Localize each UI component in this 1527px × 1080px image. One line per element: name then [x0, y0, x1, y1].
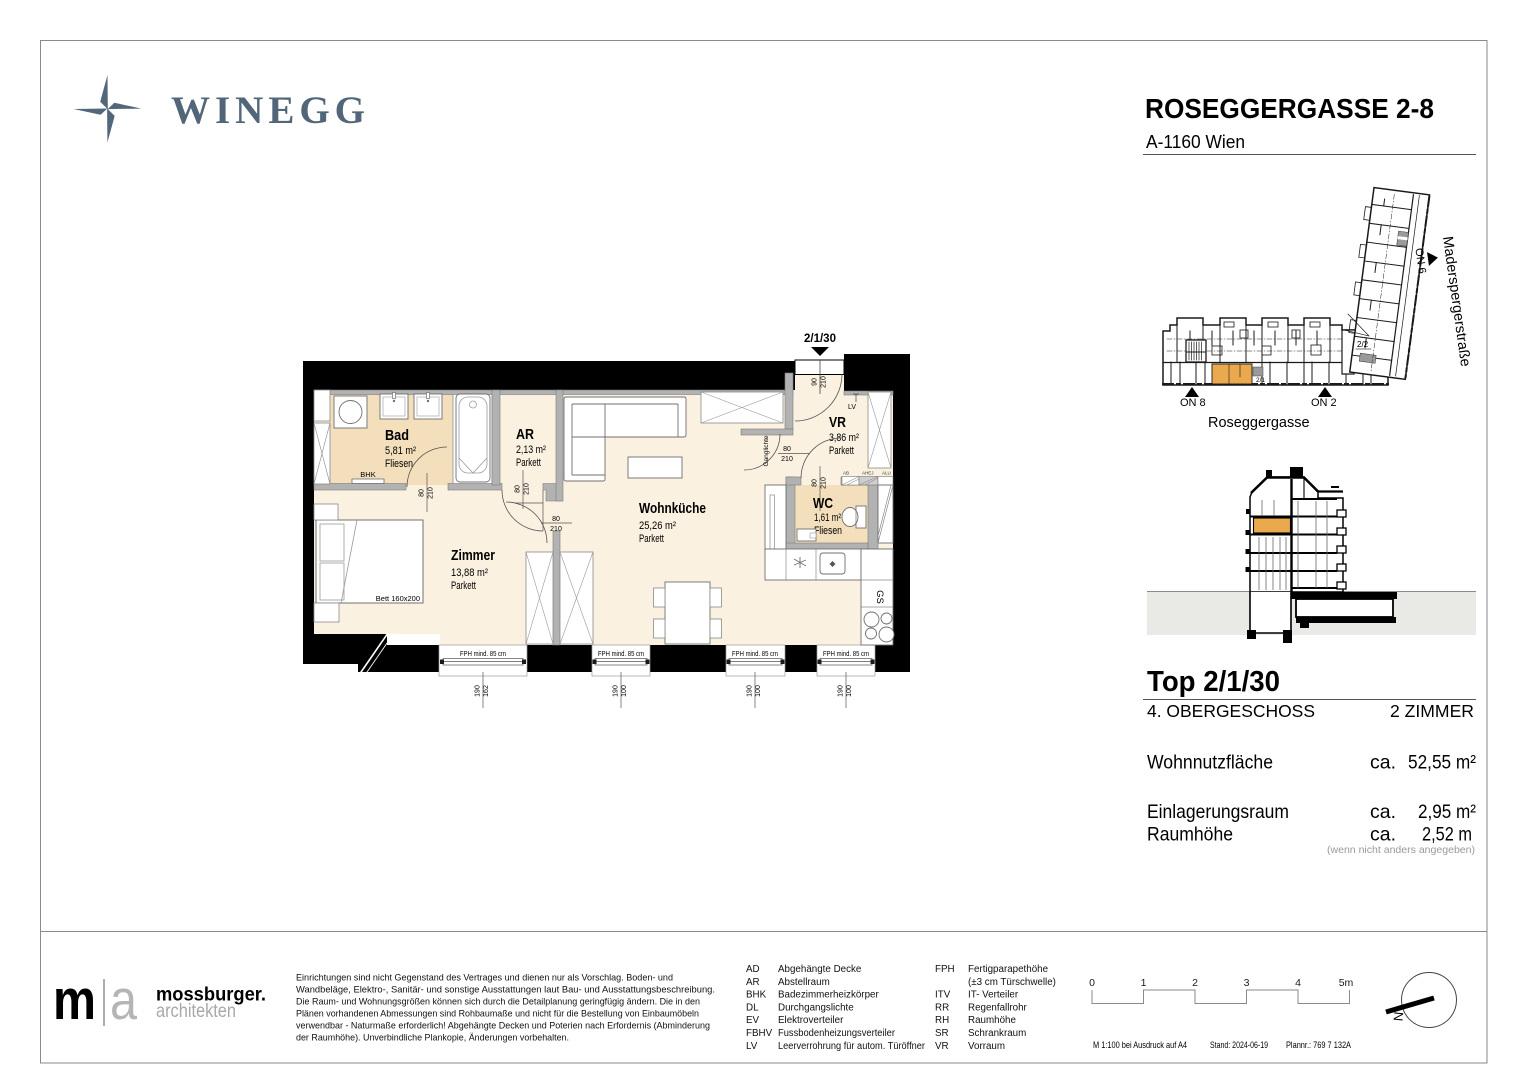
svg-text:A-1160 Wien: A-1160 Wien	[1146, 131, 1245, 152]
svg-text:der Raumhöhe). Unverbindliche: der Raumhöhe). Unverbindliche Plankopie,…	[296, 1033, 569, 1044]
svg-text:ca.: ca.	[1370, 801, 1396, 823]
svg-text:Raumhöhe: Raumhöhe	[1147, 824, 1233, 846]
svg-text:ALU: ALU	[882, 471, 891, 476]
svg-text:Bett 160x200: Bett 160x200	[376, 594, 420, 603]
svg-text:210: 210	[821, 477, 828, 489]
svg-text:VR: VR	[829, 414, 846, 431]
svg-text:Einrichtungen sind nicht Gegen: Einrichtungen sind nicht Gegenstand des …	[296, 973, 673, 984]
svg-text:210: 210	[550, 526, 562, 533]
svg-text:80: 80	[419, 489, 426, 497]
svg-text:N: N	[1391, 1011, 1407, 1022]
svg-text:architekten: architekten	[156, 1000, 236, 1022]
svg-text:BHK: BHK	[746, 990, 767, 1001]
svg-text:RH: RH	[935, 1015, 949, 1026]
svg-text:BHK: BHK	[360, 470, 375, 479]
svg-text:Plannr.: 769 7 132A: Plannr.: 769 7 132A	[1286, 1040, 1352, 1051]
svg-text:ITV: ITV	[935, 990, 951, 1001]
svg-text:2: 2	[1192, 977, 1198, 989]
svg-text:25,26 m²: 25,26 m²	[639, 520, 676, 532]
svg-text:210: 210	[524, 483, 531, 495]
svg-text:WC: WC	[813, 495, 833, 512]
svg-text:LV: LV	[746, 1041, 758, 1052]
svg-text:ROSEGGERGASSE 2-8: ROSEGGERGASSE 2-8	[1145, 93, 1434, 124]
svg-text:AHEJ: AHEJ	[862, 471, 874, 476]
svg-text:VR: VR	[935, 1041, 949, 1052]
svg-text:5,81 m²: 5,81 m²	[385, 445, 416, 457]
svg-text:1,61 m²: 1,61 m²	[814, 512, 841, 524]
svg-text:Parkett: Parkett	[829, 445, 854, 457]
svg-text:verwendbar - Naturmaße erforde: verwendbar - Naturmaße erforderlich! Abg…	[296, 1021, 710, 1032]
svg-text:2/2: 2/2	[1357, 340, 1369, 349]
svg-text:2,52 m: 2,52 m	[1422, 824, 1472, 846]
svg-text:ON 2: ON 2	[1311, 397, 1337, 409]
svg-text:190: 190	[613, 685, 620, 697]
svg-text:SR: SR	[935, 1028, 949, 1039]
svg-text:1: 1	[1141, 977, 1147, 989]
svg-text:Regenfallrohr: Regenfallrohr	[968, 1002, 1028, 1013]
svg-text:Roseggergasse: Roseggergasse	[1208, 415, 1310, 431]
svg-text:210: 210	[781, 456, 793, 463]
svg-text:Einlagerungsraum: Einlagerungsraum	[1147, 801, 1289, 823]
svg-text:IT- Verteiler: IT- Verteiler	[968, 990, 1019, 1001]
svg-text:4: 4	[1295, 977, 1301, 989]
svg-text:m: m	[53, 968, 96, 1032]
svg-text:FPH mind. 85 cm: FPH mind. 85 cm	[823, 649, 869, 658]
svg-text:100: 100	[755, 685, 762, 697]
svg-text:4. OBERGESCHOSS: 4. OBERGESCHOSS	[1147, 701, 1315, 721]
svg-text:Die Raum- und Wohnungsgrößen k: Die Raum- und Wohnungsgrößen können sich…	[296, 997, 700, 1008]
svg-text:FPH mind. 85 cm: FPH mind. 85 cm	[732, 649, 778, 658]
svg-text:210: 210	[821, 376, 828, 388]
svg-text:EV: EV	[746, 1015, 760, 1026]
svg-text:90: 90	[812, 378, 819, 386]
svg-text:210: 210	[428, 487, 435, 499]
svg-text:Wohnküche: Wohnküche	[639, 500, 706, 517]
svg-text:162: 162	[483, 685, 490, 697]
svg-text:Fussbodenheizungsverteiler: Fussbodenheizungsverteiler	[778, 1028, 896, 1039]
svg-text:FPH mind. 85 cm: FPH mind. 85 cm	[460, 649, 506, 658]
svg-text:Wandbeläge, Elektro-, Sanitär-: Wandbeläge, Elektro-, Sanitär- und sonst…	[296, 985, 715, 996]
svg-text:Badezimmerheizkörper: Badezimmerheizkörper	[778, 990, 879, 1001]
svg-text:0: 0	[1089, 977, 1095, 989]
svg-text:WINEGG: WINEGG	[171, 89, 365, 132]
svg-text:2,95 m²: 2,95 m²	[1418, 801, 1476, 823]
svg-text:Fliesen: Fliesen	[385, 458, 413, 470]
svg-text:Bad: Bad	[385, 427, 409, 444]
svg-text:(wenn nicht anders angegeben): (wenn nicht anders angegeben)	[1327, 844, 1475, 856]
svg-text:2/1: 2/1	[1256, 377, 1265, 384]
svg-text:100: 100	[621, 685, 628, 697]
svg-text:190: 190	[747, 685, 754, 697]
svg-text:2 ZIMMER: 2 ZIMMER	[1390, 701, 1474, 721]
svg-text:Elektroverteiler: Elektroverteiler	[778, 1015, 844, 1026]
svg-text:ON 8: ON 8	[1180, 397, 1206, 409]
svg-text:FPH: FPH	[935, 964, 955, 975]
svg-text:LV: LV	[848, 404, 856, 411]
svg-text:Zimmer: Zimmer	[451, 547, 495, 564]
svg-text:2,13 m²: 2,13 m²	[516, 444, 546, 456]
svg-text:Stand: 2024-06-19: Stand: 2024-06-19	[1210, 1040, 1268, 1051]
svg-text:FBHV: FBHV	[746, 1028, 773, 1039]
svg-text:3: 3	[1244, 977, 1250, 989]
svg-text:52,55 m²: 52,55 m²	[1408, 752, 1476, 774]
svg-text:Fertigparapethöhe: Fertigparapethöhe	[968, 964, 1049, 975]
svg-text:Top 2/1/30: Top 2/1/30	[1147, 666, 1280, 698]
svg-text:a: a	[110, 968, 137, 1032]
svg-text:Raumhöhe: Raumhöhe	[968, 1015, 1016, 1026]
svg-text:80: 80	[812, 479, 819, 487]
svg-text:RR: RR	[935, 1002, 949, 1013]
svg-text:Wohnnutzfläche: Wohnnutzfläche	[1147, 752, 1273, 774]
svg-text:Ganglichte: Ganglichte	[763, 435, 770, 466]
svg-text:3,86 m²: 3,86 m²	[829, 432, 859, 444]
svg-text:(±3 cm Türschwelle): (±3 cm Türschwelle)	[968, 977, 1056, 988]
svg-text:Vorraum: Vorraum	[968, 1041, 1005, 1052]
svg-text:Abstellraum: Abstellraum	[778, 977, 830, 988]
svg-text:80: 80	[515, 485, 522, 493]
svg-text:FPH mind. 85 cm: FPH mind. 85 cm	[598, 649, 644, 658]
svg-text:80: 80	[552, 516, 560, 523]
svg-text:190: 190	[838, 685, 845, 697]
svg-text:Parkett: Parkett	[451, 580, 476, 592]
svg-text:80: 80	[783, 446, 791, 453]
svg-text:Abgehängte Decke: Abgehängte Decke	[778, 964, 862, 975]
svg-text:2/1/30: 2/1/30	[804, 333, 836, 345]
svg-text:13,88 m²: 13,88 m²	[451, 567, 488, 579]
svg-text:Schrankraum: Schrankraum	[968, 1028, 1026, 1039]
svg-text:ca.: ca.	[1370, 752, 1396, 774]
svg-text:Parkett: Parkett	[639, 533, 664, 545]
svg-text:AD: AD	[746, 964, 760, 975]
svg-text:100: 100	[846, 685, 853, 697]
svg-text:Durchgangslichte: Durchgangslichte	[778, 1002, 854, 1013]
svg-text:M 1:100 bei Ausdruck auf A4: M 1:100 bei Ausdruck auf A4	[1093, 1040, 1187, 1051]
svg-text:Fliesen: Fliesen	[814, 525, 842, 537]
svg-text:AR: AR	[516, 426, 534, 443]
svg-text:Leerverrohrung für autom. Türö: Leerverrohrung für autom. Türöffner	[778, 1041, 926, 1052]
svg-text:AR: AR	[746, 977, 760, 988]
svg-text:ca.: ca.	[1370, 824, 1396, 846]
svg-text:Parkett: Parkett	[516, 457, 541, 469]
svg-text:Plänen vorhandenen Abmessungen: Plänen vorhandenen Abmessungen sind Rohb…	[296, 1009, 699, 1020]
svg-text:5m: 5m	[1339, 977, 1354, 989]
svg-text:GS: GS	[874, 590, 885, 604]
svg-text:AB: AB	[843, 471, 849, 476]
svg-text:DL: DL	[746, 1002, 759, 1013]
svg-text:190: 190	[475, 685, 482, 697]
